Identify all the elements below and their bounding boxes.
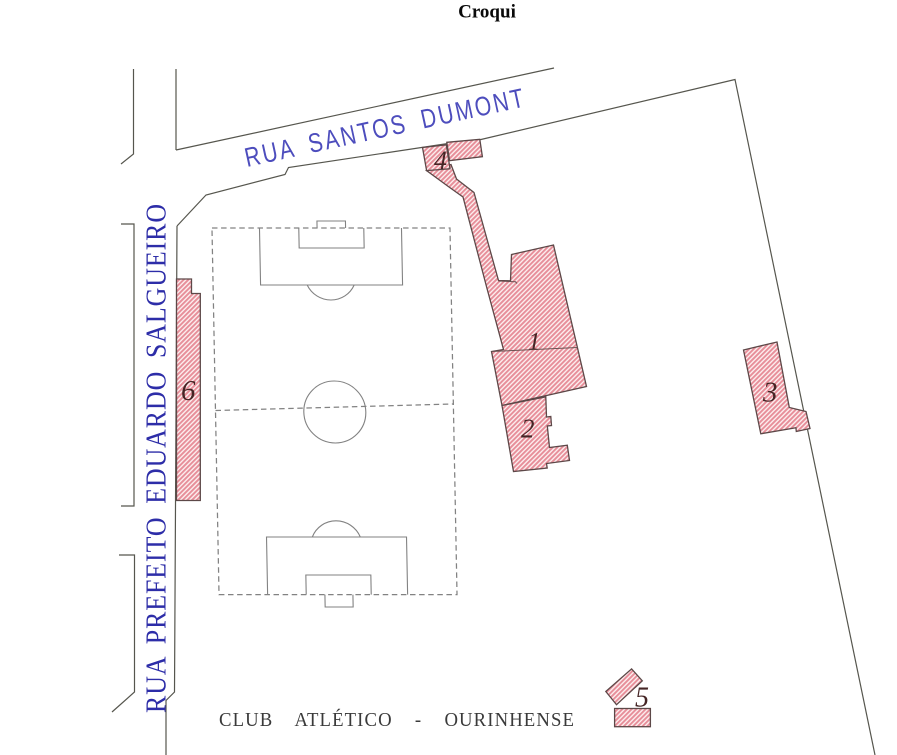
svg-text:Croqui: Croqui	[458, 2, 516, 23]
svg-text:2: 2	[521, 414, 535, 444]
svg-text:6: 6	[181, 375, 196, 407]
svg-text:5: 5	[635, 683, 649, 714]
svg-text:RUA PREFEITO EDUARDO SALGUEIRO: RUA PREFEITO EDUARDO SALGUEIRO	[141, 203, 173, 713]
svg-text:CLUB ATLÉTICO - OURINHENSE: CLUB ATLÉTICO - OURINHENSE	[219, 708, 575, 731]
svg-text:4: 4	[434, 146, 447, 175]
svg-text:1: 1	[528, 329, 541, 356]
svg-text:3: 3	[762, 377, 778, 409]
